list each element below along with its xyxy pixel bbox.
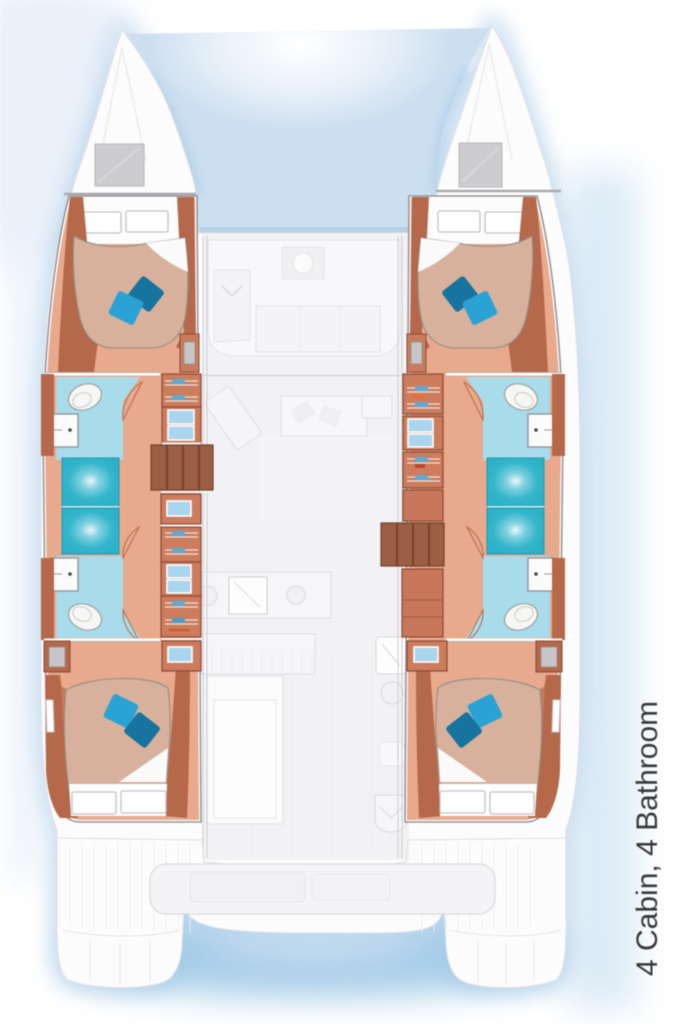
svg-text:4 Cabin, 4 Bathroom: 4 Cabin, 4 Bathroom [631, 701, 664, 976]
